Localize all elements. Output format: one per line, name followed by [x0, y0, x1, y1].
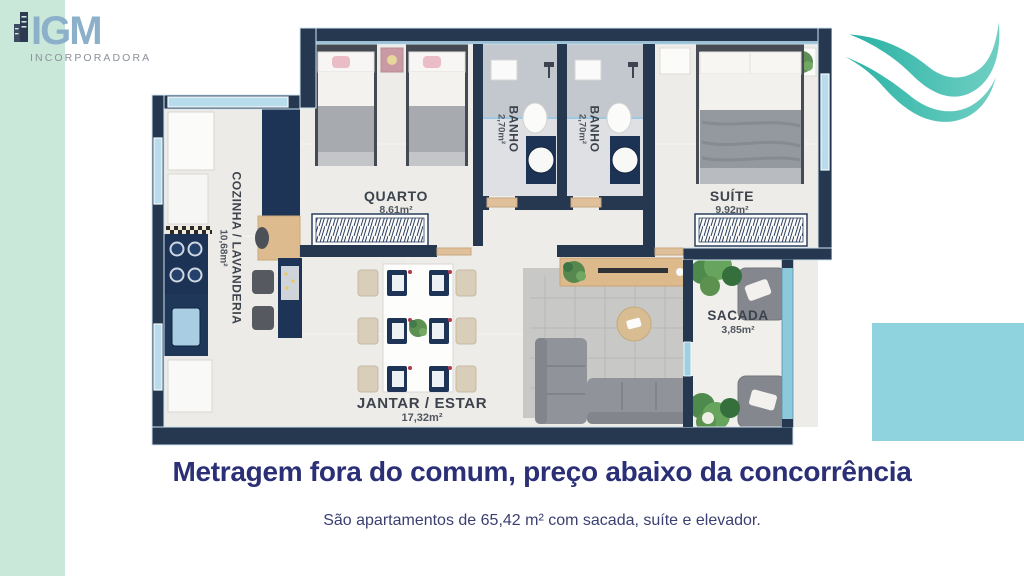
- room-label-suite: SUÍTE 9,92m²: [710, 188, 754, 216]
- room-label-cozinha-lavanderia: COZINHA / LAVANDERIA 10,68m²: [217, 171, 242, 324]
- building-icon: [14, 10, 29, 47]
- left-accent-strip: [0, 0, 65, 576]
- room-label-jantar-estar: JANTAR / ESTAR 17,32m²: [357, 395, 487, 425]
- headline: Metragem fora do comum, preço abaixo da …: [60, 456, 1024, 488]
- room-label-sacada: SACADA 3,85m²: [707, 308, 768, 336]
- room-label-banho-2: BANHO 2,70m²: [576, 106, 601, 153]
- right-accent-block: [872, 323, 1024, 441]
- floor-plan: QUARTO 8,61m² BANHO 2,70m² BANHO 2,70m² …: [150, 26, 832, 446]
- room-label-quarto: QUARTO 8,61m²: [364, 188, 428, 216]
- wave-logo-icon: [842, 16, 1007, 128]
- logo-text: IGM: [31, 11, 101, 51]
- marketing-slide: IGM INCORPORADORA: [0, 0, 1024, 576]
- room-label-banho-1: BANHO 2,70m²: [495, 106, 520, 153]
- subheadline: São apartamentos de 65,42 m² com sacada,…: [60, 512, 1024, 530]
- floor-plan-graphic: [150, 26, 832, 446]
